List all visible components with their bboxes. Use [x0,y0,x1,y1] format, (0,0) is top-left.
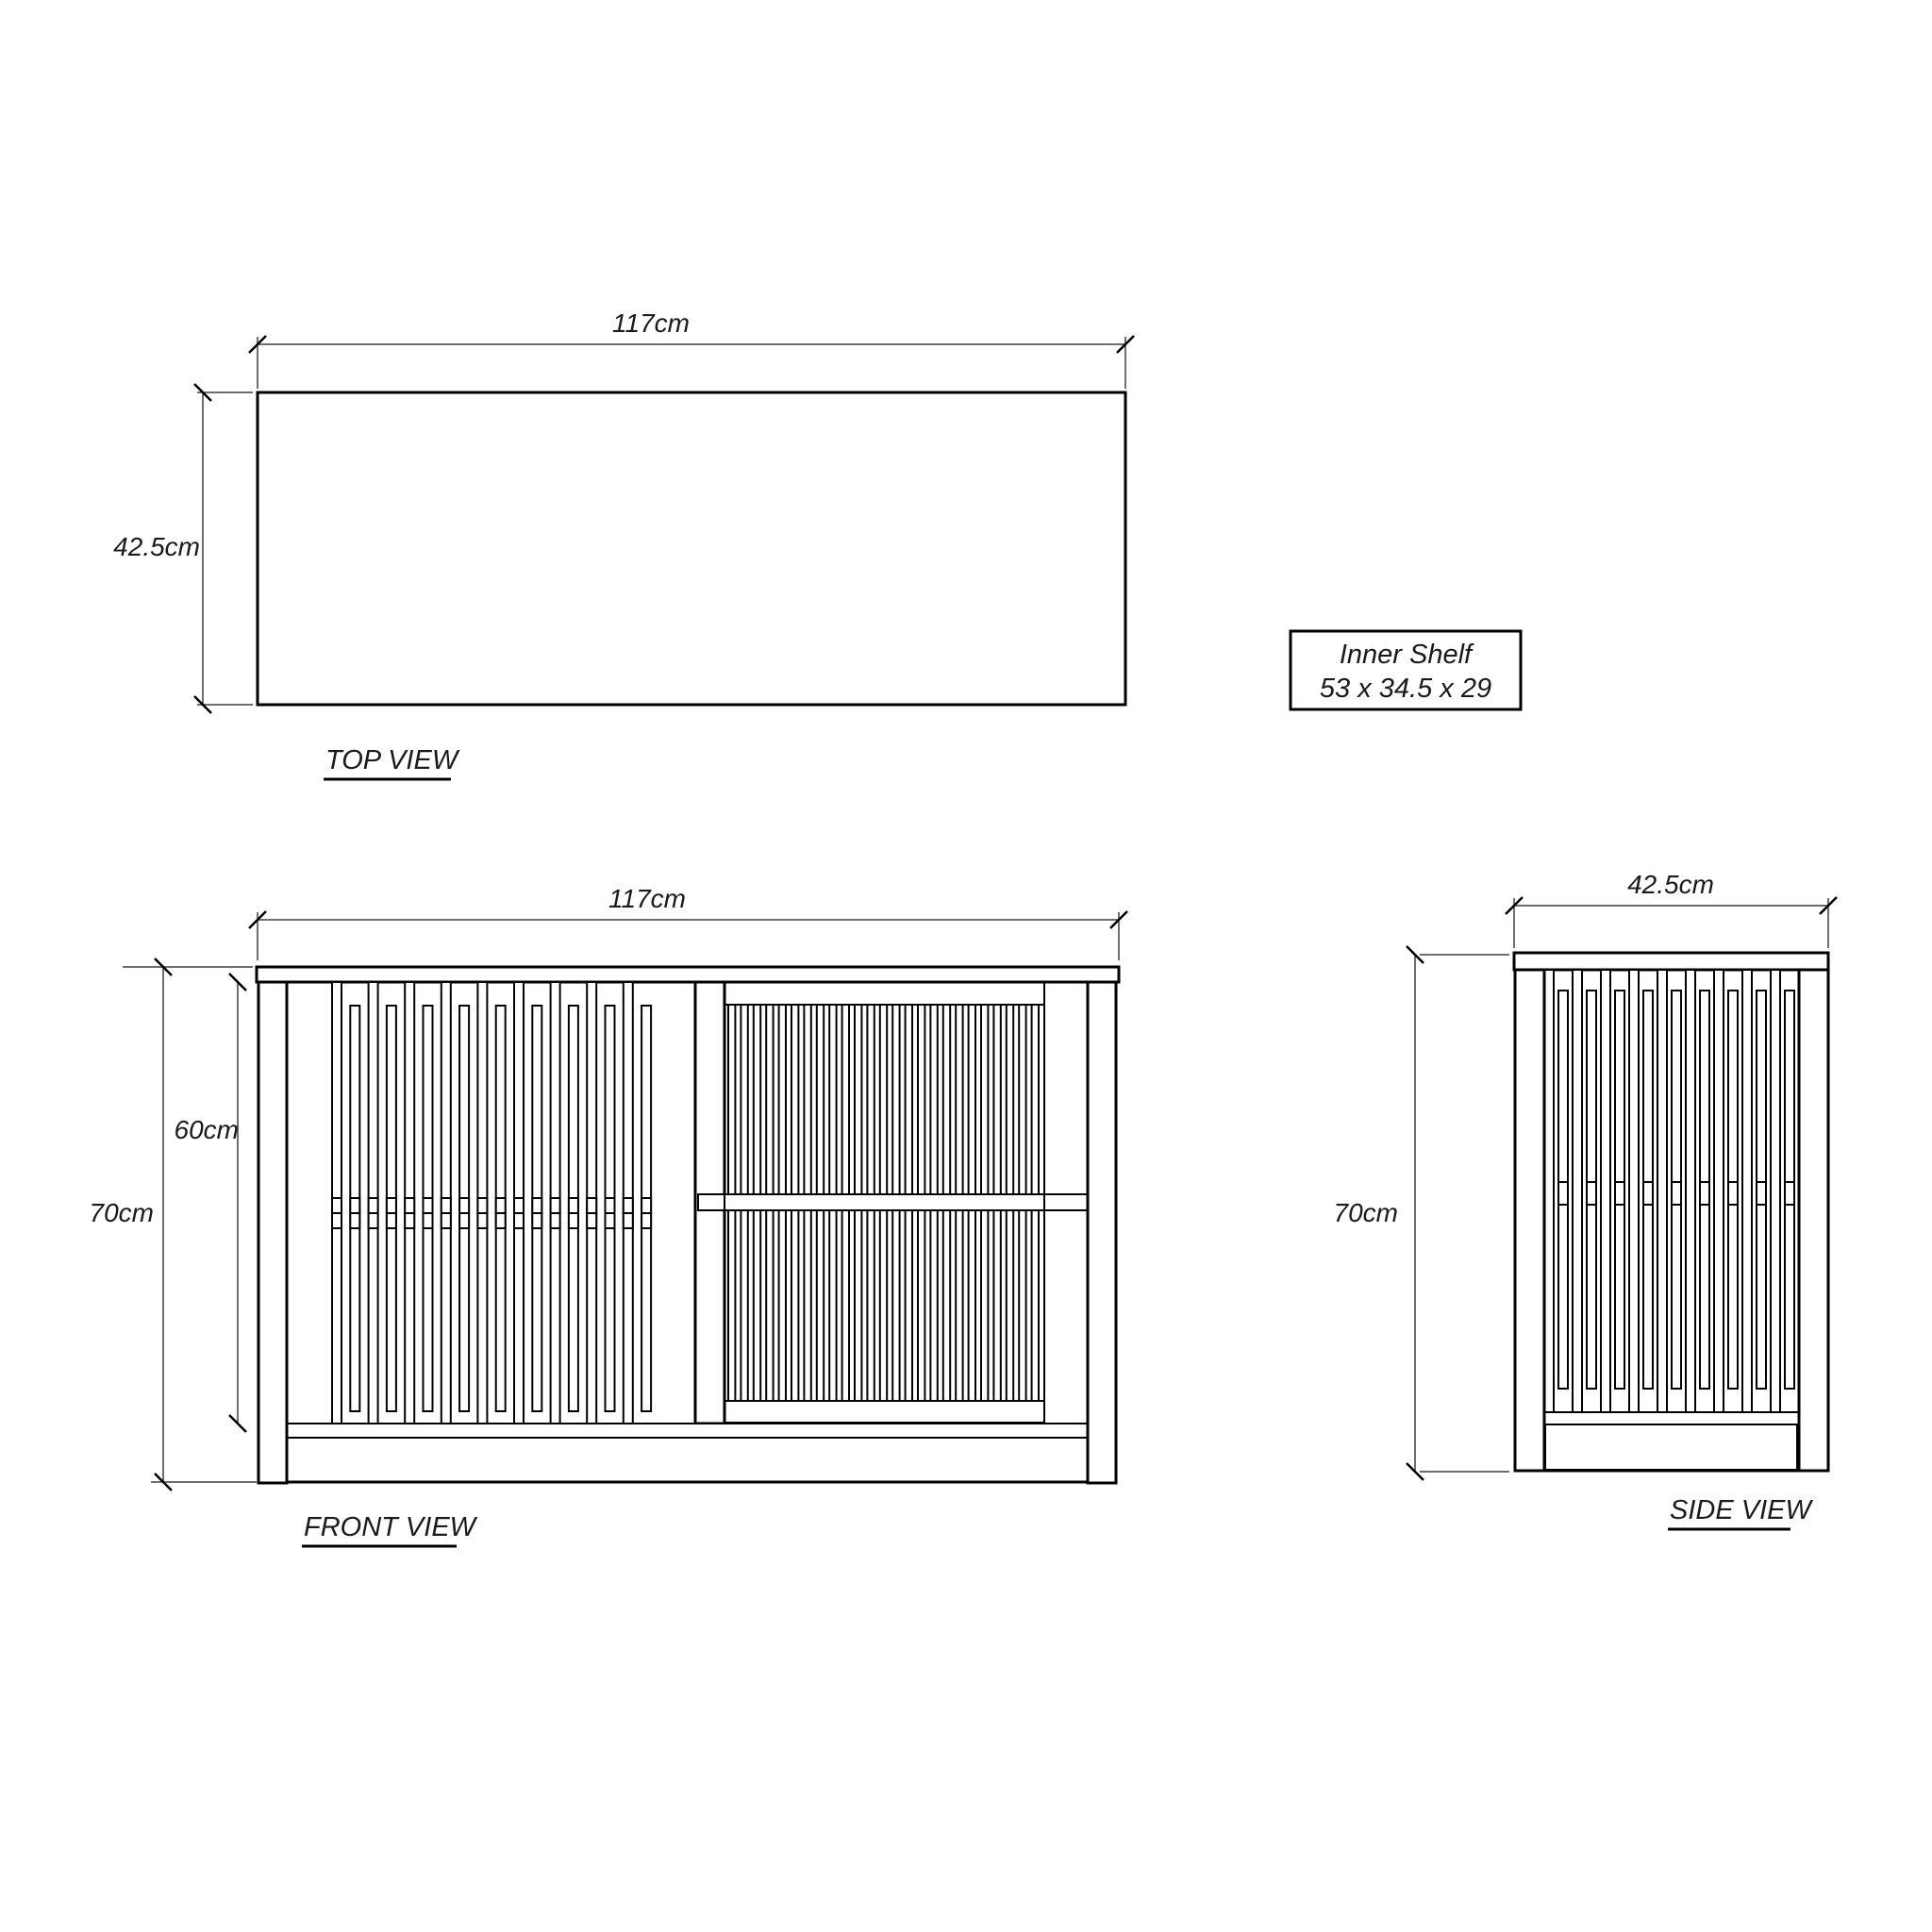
slat [405,1198,414,1213]
slat [441,1198,451,1213]
slat [804,1210,810,1401]
slat [1558,1182,1568,1205]
slat [624,1213,633,1228]
slat [1771,970,1780,1412]
slat [791,1005,798,1194]
slat [791,1210,798,1401]
slat [332,1213,341,1228]
slat [817,1005,824,1194]
slat [880,1210,887,1401]
side-view: 42.5cm 70cm SIDE VIEW [1334,870,1837,1529]
slat [477,1213,487,1228]
slat [387,1213,396,1228]
slat [892,1005,899,1194]
inner-shelf-title: Inner Shelf [1340,640,1474,670]
side-bottom-rail [1544,1412,1799,1424]
front-view: 117cm 70cm 60cm FRONT VIEW [90,884,1127,1546]
slat [606,1213,615,1228]
slat [1728,1182,1738,1205]
slat [754,1210,760,1401]
slat [842,1210,849,1401]
slat [779,1005,786,1194]
slat [1700,1182,1709,1205]
slat [918,1005,924,1194]
top-view: 117cm 42.5cm TOP VIEW [113,308,1134,779]
side-right-post [1799,970,1828,1471]
slat [1742,970,1752,1412]
slat [754,1005,760,1194]
slat [1019,1210,1025,1401]
slat [569,1198,578,1213]
slat [943,1210,950,1401]
slat [641,1213,651,1228]
front-view-width-dim-label: 117cm [608,884,686,913]
slat [1615,1182,1624,1205]
front-right-post [1088,982,1116,1483]
side-top-cap [1514,953,1828,970]
slat [1032,1210,1039,1401]
side-plinth [1545,1424,1797,1470]
slat [829,1210,836,1401]
front-left-post [258,982,287,1483]
slat [1573,970,1582,1412]
slat [387,1198,396,1213]
slat [906,1005,912,1194]
slat [424,1213,433,1228]
slat [1643,1182,1653,1205]
slat [981,1005,988,1194]
slat [892,1210,899,1401]
slat [587,1213,596,1228]
side-view-title: SIDE VIEW [1670,1495,1813,1525]
slat [766,1210,773,1401]
slat [943,1005,950,1194]
slat [1785,1182,1794,1205]
front-view-title: FRONT VIEW [304,1512,478,1542]
slat [880,1005,887,1194]
slat [993,1210,1000,1401]
slat [766,1005,773,1194]
slat [728,1005,735,1194]
side-view-width-dim-label: 42.5cm [1627,870,1714,899]
slat [459,1198,469,1213]
slat [332,1198,341,1213]
front-view-height-dim-label: 70cm [90,1198,154,1227]
slat [532,1198,541,1213]
slat [930,1005,937,1194]
inner-shelf-dimensions: 53 x 34.5 x 29 [1320,674,1491,704]
slat [829,1005,836,1194]
slat [350,1198,359,1213]
slat [551,1198,560,1213]
slat [587,1198,596,1213]
slat [532,1213,541,1228]
slat [551,1213,560,1228]
slat [350,1213,359,1228]
slat [741,1005,747,1194]
slat [969,1210,975,1401]
technical-drawing: 117cm 42.5cm TOP VIEW Inner Shelf 53 x 3… [0,0,1932,1932]
slat [918,1210,924,1401]
slat [1007,1005,1013,1194]
slat [728,1210,735,1401]
front-top-cap [257,967,1119,982]
slat [817,1210,824,1401]
slat [641,1198,651,1213]
slat [441,1213,451,1228]
side-view-height-dim-label: 70cm [1334,1198,1398,1227]
slat [867,1210,874,1401]
drawing-sheet: 117cm 42.5cm TOP VIEW Inner Shelf 53 x 3… [0,0,1932,1932]
slat [1686,970,1695,1412]
slat [842,1005,849,1194]
slat [514,1198,524,1213]
slat [477,1198,487,1213]
front-shelf-band [698,1194,1088,1210]
slat [496,1213,506,1228]
slat [1007,1210,1013,1401]
slat [459,1213,469,1228]
slat [956,1210,962,1401]
front-view-inner-height-dim-label: 60cm [175,1115,239,1144]
top-view-depth-dim-label: 42.5cm [113,532,200,561]
slat [1672,1182,1681,1205]
slat [779,1210,786,1401]
slat [1629,970,1639,1412]
front-left-door-slats [332,982,651,1424]
slat [741,1210,747,1401]
slat [981,1210,988,1401]
top-view-outline [258,392,1125,705]
slat [1019,1005,1025,1194]
slat [1657,970,1667,1412]
slat [405,1213,414,1228]
slat [569,1213,578,1228]
slat [867,1005,874,1194]
side-panel-slats [1544,970,1794,1412]
slat [855,1210,861,1401]
slat [1601,970,1610,1412]
slat [930,1210,937,1401]
slat [969,1005,975,1194]
slat [1714,970,1724,1412]
front-bottom-rail [287,1424,1088,1438]
top-view-title: TOP VIEW [325,745,460,775]
slat [369,1213,378,1228]
slat [606,1198,615,1213]
slat [624,1198,633,1213]
slat [804,1005,810,1194]
slat [369,1198,378,1213]
slat [496,1198,506,1213]
slat [1757,1182,1766,1205]
slat [1587,1182,1596,1205]
slat [993,1005,1000,1194]
side-left-post [1515,970,1544,1471]
slat [956,1005,962,1194]
slat [424,1198,433,1213]
slat [1032,1005,1039,1194]
inner-shelf-note: Inner Shelf 53 x 34.5 x 29 [1291,631,1521,709]
top-view-width-dim-label: 117cm [612,308,690,338]
slat [514,1213,524,1228]
slat [906,1210,912,1401]
slat [855,1005,861,1194]
